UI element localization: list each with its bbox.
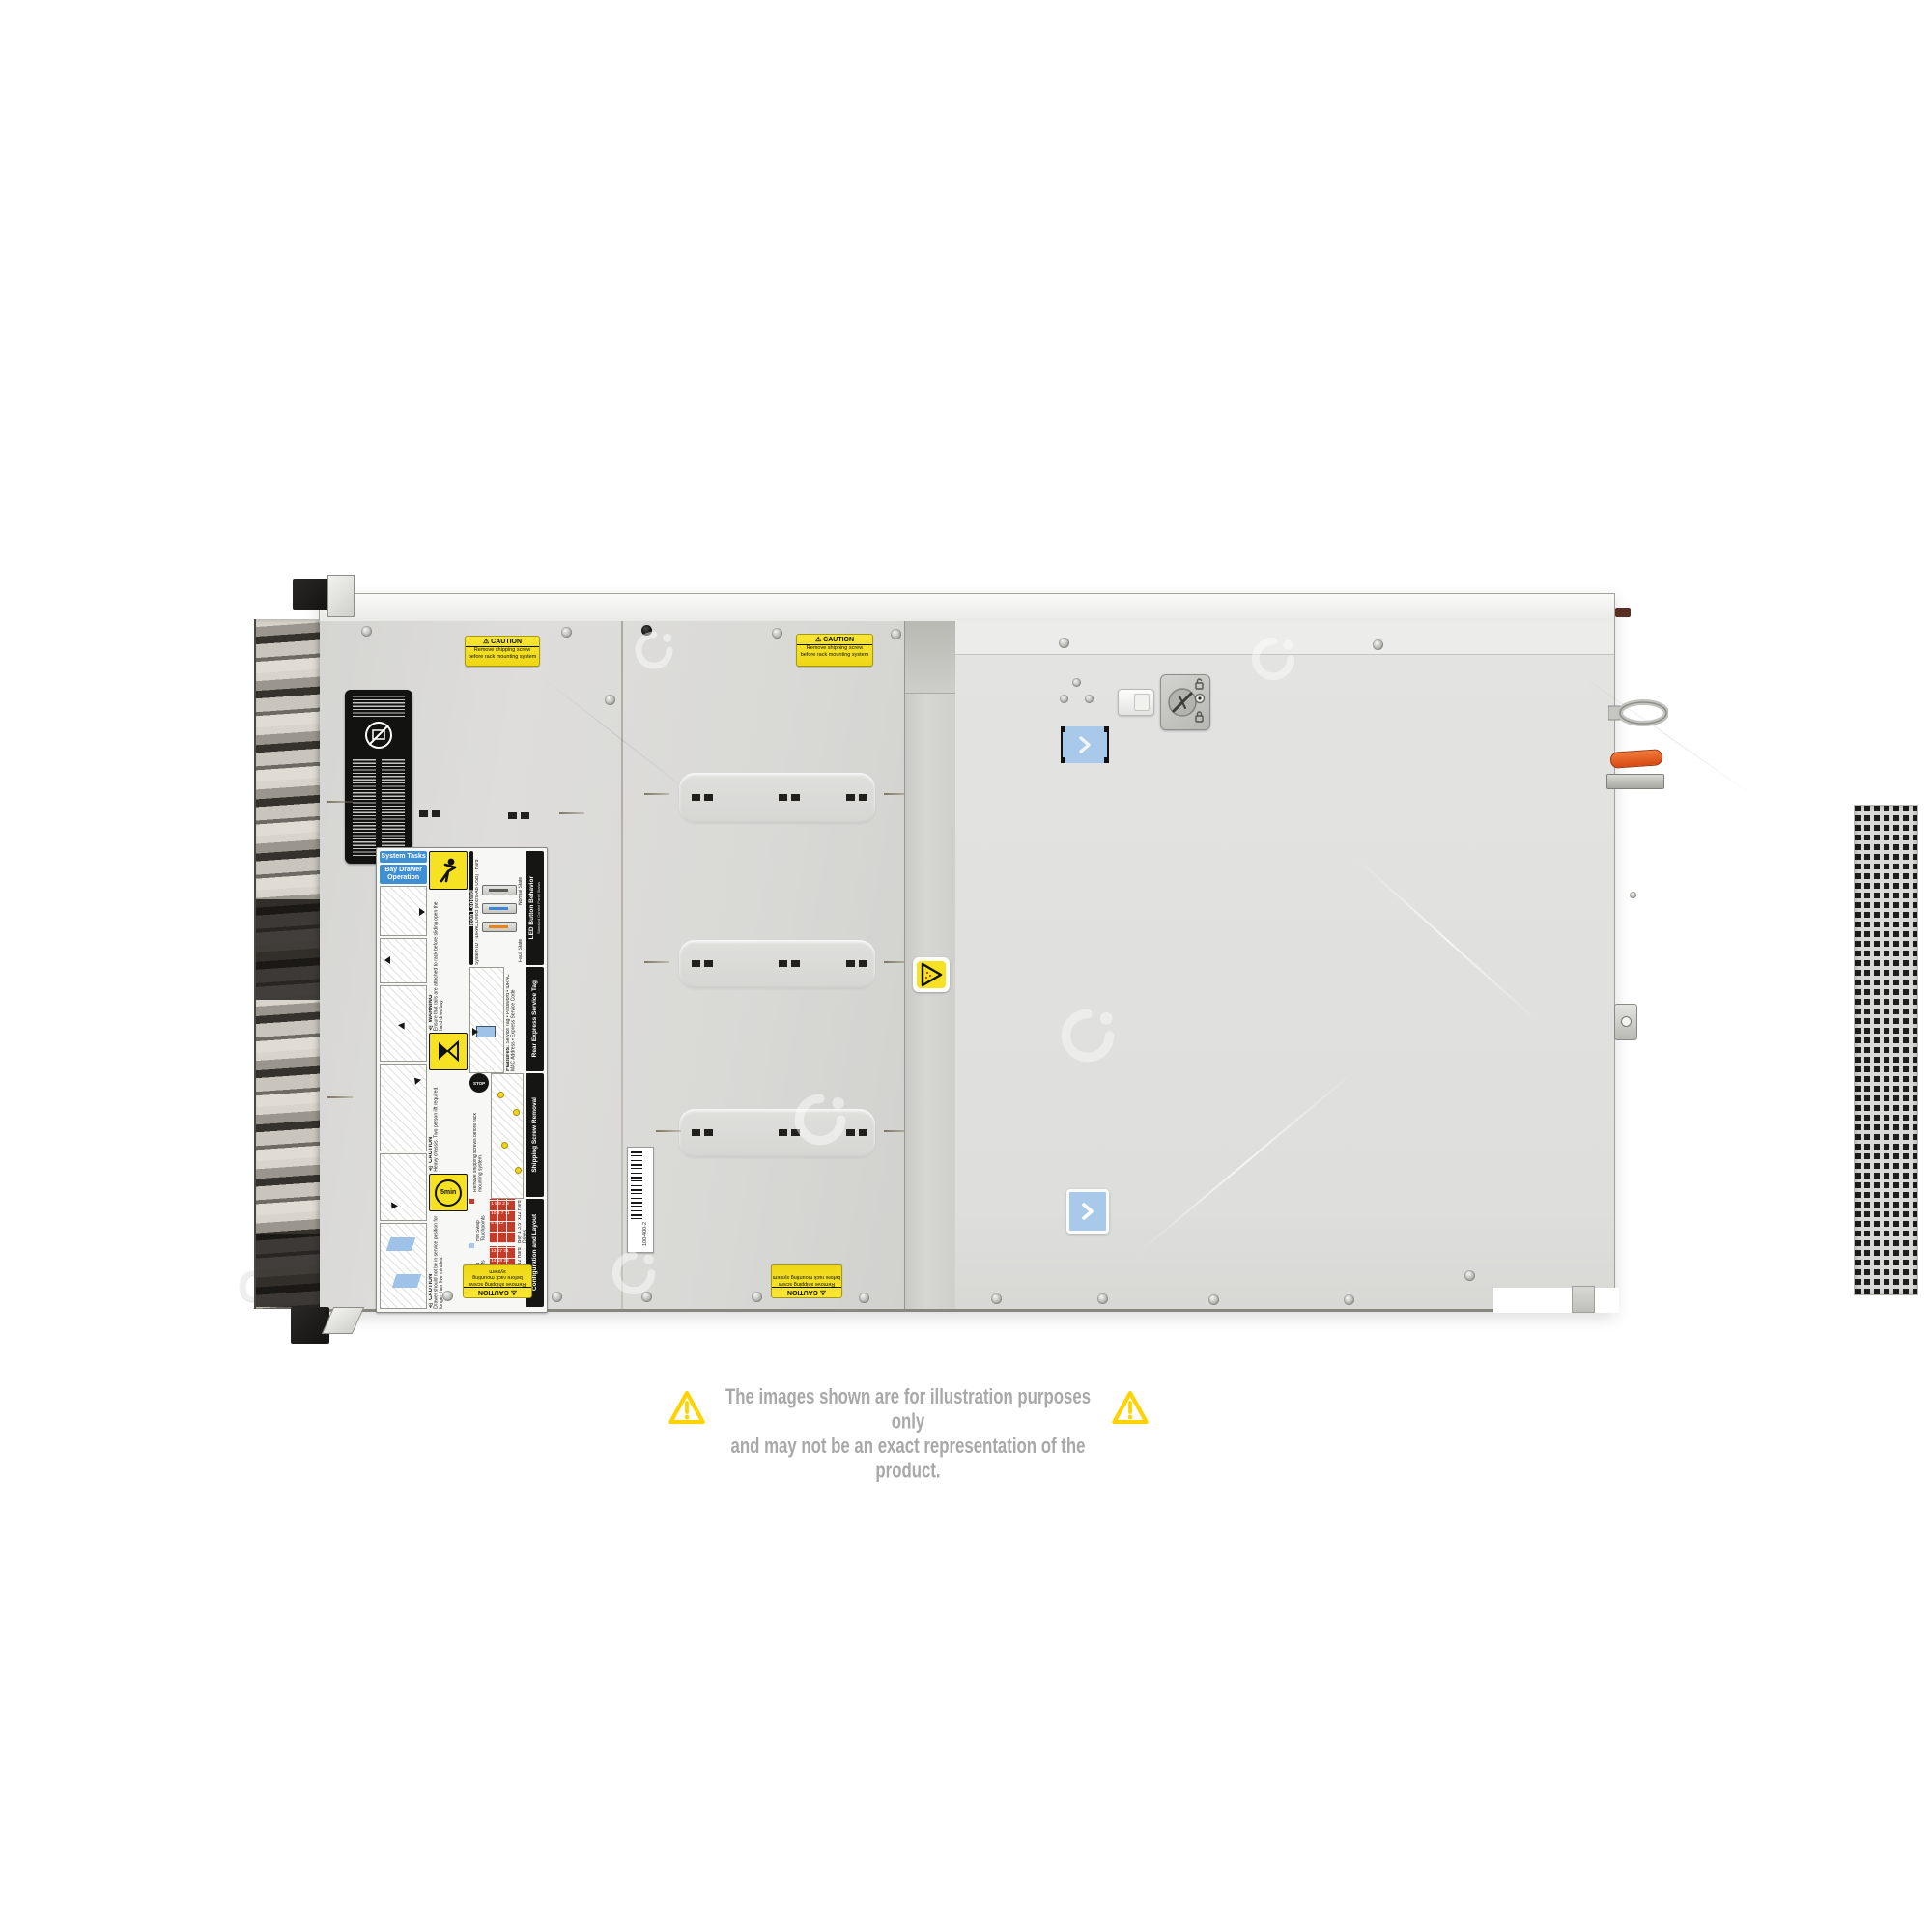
pull-tag-shape [476,1026,496,1037]
screw-hole [1059,638,1069,648]
led-state-labels: Normal State Fault State [519,851,525,965]
service-tag-section: Features: Service Tag • Password • iDRAC… [469,967,524,1071]
warning-triangle-small-icon: ⚠ [483,639,489,645]
cold-swap-touchpoint-bottom [1066,1189,1109,1234]
caution-label-rotated: ⚠ CAUTION Remove shipping screw before r… [463,1264,532,1298]
surface-reflection [1133,1069,1356,1257]
screw-hole [752,1292,762,1302]
seam-dash [559,812,584,814]
hinge-shadow [905,621,956,694]
icon-legend-header: Icon Legend [469,851,473,965]
service-label-tasks-column: System Tasks Bay Drawer Operation [380,851,427,1309]
disclaimer-line-1: The images shown are for illustration pu… [715,1385,1101,1435]
shipping-screws-sketch [491,1073,524,1199]
warning-triangle-small-icon: ⚠ [815,637,821,643]
rail-mounting-sketch [380,938,427,983]
disclaimer-line-2: and may not be an exact representation o… [715,1435,1101,1484]
icon-legend-items: System ID · iDRAC Direct (Micro-AB USB) … [475,851,479,965]
screw-hole [561,627,572,638]
orange-release-lever [1609,749,1662,769]
led-state-fault-label: Fault State [519,912,525,962]
screw-hole [772,628,782,639]
rear-ring-handle [1608,698,1668,727]
led-bar-fault [482,922,517,932]
service-tag-features: Features: Service Tag • Password • iDRAC… [506,967,522,1071]
icon-legend-section: Icon Legend System ID · iDRAC Direct (Mi… [469,851,524,965]
seam-dash [644,961,669,963]
rivet [1085,695,1094,703]
screw-hole [859,1293,869,1303]
watermark-logo-icon [790,1090,850,1150]
screw-hole [605,695,615,705]
barcode-icon [631,1151,642,1221]
vent-zone [679,940,875,988]
drive-slot-dark [256,1234,322,1307]
bay-drawer-operation-chip: Bay Drawer Operation [380,865,427,884]
screw-hole [361,626,372,637]
service-tag-sketch [469,967,504,1073]
blue-drawer-shape [386,1237,416,1251]
screw-marker [501,1142,508,1149]
regulatory-fine-print [382,757,405,856]
watermark-logo-icon [609,1248,659,1298]
system-tasks-chip: System Tasks [380,851,427,863]
chevron-right-icon [1080,1201,1095,1222]
chassis-seam-strip [904,621,957,1309]
lid-corner-tab [1572,1286,1595,1313]
pinch-hazard-icon [429,1033,468,1071]
drawer-open-sketch [380,985,427,1062]
fall-hazard-icon [429,851,468,890]
screw-hole [991,1293,1002,1304]
latch-bracket [1606,774,1664,789]
screw-hole [1208,1294,1219,1305]
rear-tab [1615,608,1631,617]
rear-lid-panel [955,621,1614,1309]
latch-hole [1621,1016,1632,1027]
caution-text: ⚠ CAUTION Heavy chassis. Two person lift… [429,1072,468,1172]
screw-marker [515,1167,522,1174]
lid-corner-notch [1493,1288,1619,1313]
led-state-bars [482,851,517,965]
rail-mounting-sketch [380,886,427,936]
led-bar-normal [482,903,517,914]
drawer-close-sketch [380,1153,427,1221]
warning-triangle-icon [668,1389,706,1426]
screw-hole [442,1291,453,1301]
seam-dash [327,1096,353,1098]
watermark-logo-icon [632,628,676,672]
drive-slot-dark [256,899,322,1000]
cold-swap-touchpoint-top [1061,726,1109,763]
drawer-slide-sketch [380,1064,427,1151]
vent-slots [419,810,440,817]
service-label-headers-column: LED Button Behavior Standard Control Pan… [526,851,544,1309]
chassis-front-rim [320,594,1614,622]
service-label-content-column: Icon Legend System ID · iDRAC Direct (Mi… [469,851,524,1309]
screw-hole [1097,1293,1108,1304]
stop-icon: STOP [469,1073,489,1093]
vent-slots [508,812,529,819]
led-bar-off [482,885,517,895]
crossed-circle-icon [362,719,395,752]
rack-ear-bracket-top [327,575,355,617]
pull-tab-inner [1134,694,1150,711]
barcode-label: 100-400-2 [627,1147,654,1253]
rivet [1060,695,1068,703]
server-chassis-top-view: System Tasks Bay Drawer Operation [319,593,1615,1312]
rear-express-service-tag-header: Rear Express Service Tag [526,967,544,1071]
surface-reflection [1354,856,1543,1025]
product-photo: COMPAN COMPAN COMPAN COMPAN COMPAN COMPA… [0,0,1932,1932]
disclaimer-text: The images shown are for illustration pu… [715,1385,1101,1484]
led-state-normal-label: Normal State [519,855,525,905]
bay1-label: Bay 1 3.5" x12 Hard Drives [518,1199,526,1243]
screw-hole [552,1292,562,1302]
shipping-screw-section: STOP Remove shipping screws before rack … [469,1073,524,1197]
rack-ear-bottom-left [291,1307,329,1344]
bracket-right [1104,726,1109,763]
watermark-logo-icon [1248,634,1298,684]
regulatory-fine-print [353,757,376,856]
seam-dash [327,801,353,803]
service-instruction-label: System Tasks Bay Drawer Operation [376,847,548,1313]
screw-hole [1464,1270,1475,1281]
screw-marker [497,1092,504,1098]
hot-swap-label: Hot Swap Touchpoints [476,1199,487,1241]
vent-zone [679,773,875,823]
surface-scratch [1575,670,1765,804]
watermark-logo-icon [1057,1005,1119,1066]
release-pull-tab [1118,689,1154,716]
seam-dash [644,793,669,795]
bracket-left [1061,726,1065,763]
warning-triangle-small-icon: ⚠ [820,1289,826,1295]
screw-hole [1344,1294,1354,1305]
seam-dash [656,1130,681,1132]
led-button-behavior-header: LED Button Behavior Standard Control Pan… [526,851,544,965]
regulatory-fine-print [353,694,405,717]
panel-seam [621,621,623,1309]
side-latch [1614,1004,1637,1040]
shipping-screw-removal-header: Shipping Screw Removal [526,1073,544,1197]
warning-text: ⚠ WARNING Ensure that rails are attached… [429,892,468,1031]
hot-swap-swatch [469,1199,474,1204]
rivet [1072,678,1081,687]
caution-label: ⚠ CAUTION Remove shipping screw before r… [465,636,540,667]
seam-warning-sticker [913,957,950,992]
bay1-number-grid: 1 5 9 2 6 10 3 7 11 4 8 12 [489,1199,515,1243]
regulatory-label [345,690,412,864]
front-drive-carriers [254,619,322,1309]
warning-triangle-icon [1111,1389,1150,1426]
chevron-right-icon [1077,735,1093,754]
warning-triangle-small-icon: ⚠ [511,1289,517,1295]
screw-hole [1373,639,1383,650]
caution-label-rotated: ⚠ CAUTION Remove shipping screw before r… [771,1264,842,1298]
cold-swap-swatch [469,1243,474,1248]
drawer-service-sketch [380,1223,427,1309]
drawer-top-panel: System Tasks Bay Drawer Operation [320,621,904,1309]
screw-hole [891,629,901,639]
caution-label: ⚠ CAUTION Remove shipping screw before r… [796,634,873,667]
screw-marker [513,1109,520,1116]
side-screw [1630,892,1636,898]
service-label-warnings-column: ⚠ WARNING Ensure that rails are attached… [429,851,468,1309]
exhaust-vent-grille [1854,805,1918,1295]
warning-triangle-rotated-icon [916,960,947,989]
shipping-note: Remove shipping screws before rack mount… [473,1095,485,1192]
rack-ear-top-left [293,579,329,610]
five-minute-timer-icon: 5min [429,1174,468,1212]
surface-scratch [535,671,703,803]
barcode-number: 100-400-2 [642,1151,648,1246]
blue-drawer-shape [392,1274,422,1288]
latch-dial-icon [1161,675,1209,729]
lid-rotary-latch [1160,674,1210,730]
